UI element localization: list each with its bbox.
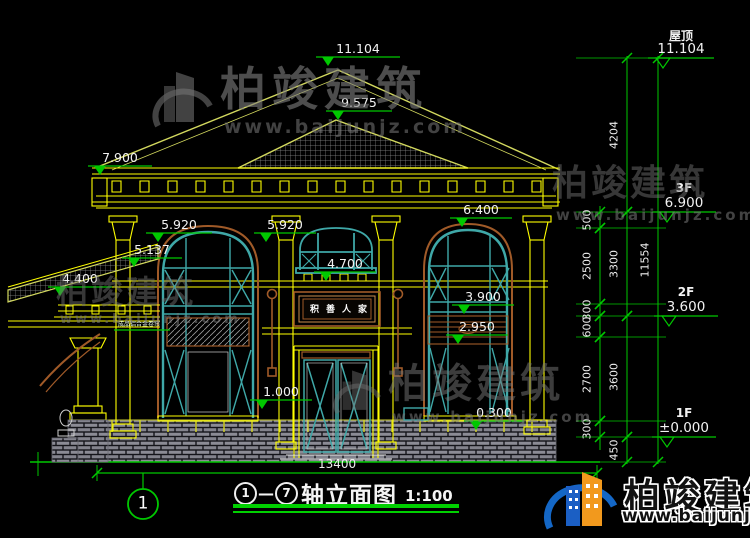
floor-level-triangle-icon <box>662 316 676 326</box>
plaque-text: 积善人家 <box>310 302 374 315</box>
floor-level-triangle-icon <box>660 437 674 447</box>
axis-range-dash: — <box>258 484 274 503</box>
level-triangle-icon <box>320 272 332 281</box>
watermark-url: www.baijunjz.com <box>556 206 750 224</box>
brand-logo-icon <box>330 360 382 422</box>
watermark-url: www.baijunjz.com <box>224 116 466 138</box>
title-underline-thick <box>233 504 459 508</box>
watermark-brand: 柏竣建筑 <box>220 66 428 112</box>
axis-start-bubble: 1 <box>234 482 257 505</box>
level-triangle-icon <box>94 166 106 175</box>
level-triangle-icon <box>456 218 468 227</box>
watermark-url: www.baijunjz.com <box>622 506 750 526</box>
watermark-brand: 柏竣建筑 <box>56 276 196 308</box>
level-triangle-icon <box>128 258 140 267</box>
elevation-sheet: 11.1049.5757.9005.9205.9206.4005.1374.40… <box>0 0 750 538</box>
level-triangle-icon <box>152 233 164 242</box>
axis-end-bubble: 7 <box>275 482 298 505</box>
brand-logo-icon <box>536 462 622 538</box>
level-triangle-icon <box>260 233 272 242</box>
watermark-brand: 柏竣建筑 <box>388 364 564 404</box>
title-scale: 1:100 <box>405 487 453 505</box>
title-underline-thin <box>233 511 459 513</box>
level-triangle-icon <box>458 305 470 314</box>
brand-logo-icon <box>148 60 214 136</box>
axis-bubble <box>128 489 158 519</box>
level-triangle-icon <box>256 400 268 409</box>
watermark-url: www.baijunjz.com <box>392 408 593 426</box>
watermark-url: www.baijunjz.com <box>60 312 241 327</box>
level-triangle-icon <box>452 335 464 344</box>
watermark-brand: 柏竣建筑 <box>552 166 708 202</box>
